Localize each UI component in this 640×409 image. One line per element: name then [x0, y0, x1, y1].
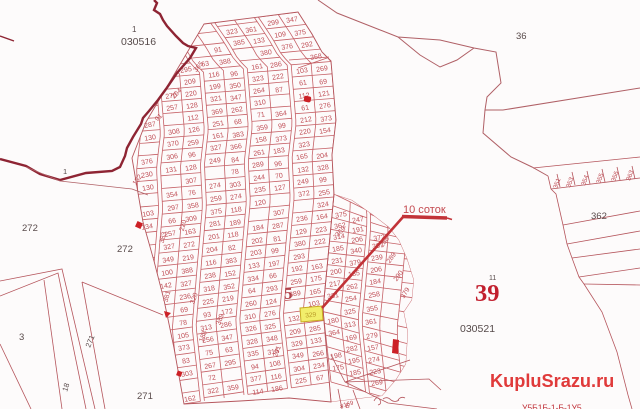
- svg-text:93: 93: [203, 311, 212, 319]
- svg-text:030521: 030521: [460, 323, 495, 335]
- svg-text:76: 76: [188, 189, 197, 197]
- svg-text:030516: 030516: [121, 36, 156, 48]
- svg-text:83: 83: [182, 357, 191, 365]
- svg-text:329: 329: [305, 311, 317, 319]
- svg-text:71: 71: [257, 111, 266, 119]
- svg-text:67: 67: [316, 374, 325, 382]
- svg-text:61: 61: [299, 79, 308, 87]
- svg-text:61: 61: [301, 104, 310, 112]
- svg-text:99: 99: [319, 176, 328, 184]
- svg-text:94: 94: [251, 363, 260, 371]
- svg-text:87: 87: [275, 86, 284, 94]
- svg-text:10 соток: 10 соток: [403, 204, 446, 216]
- svg-text:64: 64: [248, 287, 257, 295]
- svg-text:5: 5: [284, 284, 293, 303]
- svg-text:91: 91: [214, 46, 223, 54]
- svg-text:У5Б1Б-1-Б-1У5: У5Б1Б-1-Б-1У5: [522, 403, 582, 409]
- svg-text:69: 69: [319, 78, 328, 86]
- svg-text:69: 69: [180, 306, 189, 314]
- svg-text:68: 68: [234, 118, 243, 126]
- svg-text:KupluSrazu.ru: KupluSrazu.ru: [490, 371, 614, 391]
- svg-text:96: 96: [188, 151, 197, 159]
- svg-text:81: 81: [273, 235, 282, 243]
- svg-text:66: 66: [269, 272, 278, 280]
- svg-text:96: 96: [230, 70, 239, 78]
- svg-text:75: 75: [205, 349, 214, 357]
- svg-text:99: 99: [271, 247, 280, 255]
- svg-text:70: 70: [275, 172, 284, 180]
- svg-text:я Б: я Б: [340, 403, 350, 409]
- svg-text:84: 84: [231, 156, 240, 164]
- svg-text:362: 362: [591, 211, 607, 222]
- svg-text:1: 1: [132, 25, 137, 34]
- svg-text:66: 66: [168, 217, 177, 225]
- svg-text:272: 272: [117, 244, 133, 255]
- svg-text:1: 1: [63, 167, 67, 176]
- svg-text:96: 96: [274, 160, 283, 168]
- svg-text:99: 99: [278, 122, 287, 130]
- svg-text:78: 78: [179, 319, 188, 327]
- svg-text:72: 72: [208, 374, 217, 382]
- svg-text:3: 3: [19, 332, 24, 343]
- svg-text:82: 82: [228, 244, 237, 252]
- svg-text:272: 272: [22, 223, 38, 234]
- svg-text:63: 63: [225, 346, 234, 354]
- svg-text:78: 78: [231, 168, 240, 176]
- svg-text:39: 39: [475, 280, 500, 307]
- svg-text:36: 36: [516, 31, 527, 42]
- svg-text:271: 271: [137, 391, 153, 402]
